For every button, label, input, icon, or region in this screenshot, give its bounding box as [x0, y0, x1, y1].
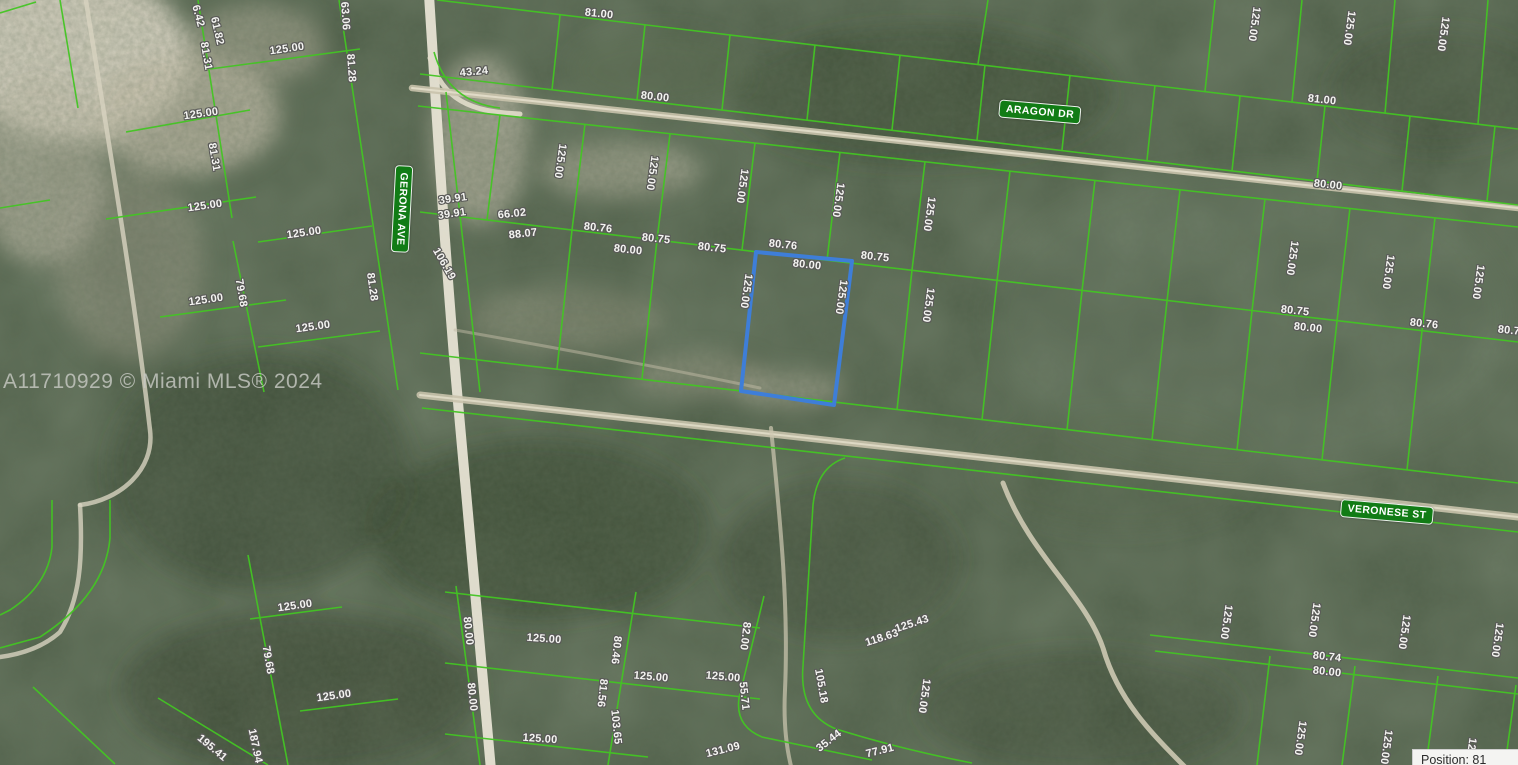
mls-watermark: A11710929 © Miami MLS® 2024: [3, 370, 323, 394]
aerial-parcel-map[interactable]: 6.4261.8281.3163.0681.28125.00125.0081.3…: [0, 0, 1518, 765]
position-indicator: Position: 81: [1412, 749, 1518, 765]
